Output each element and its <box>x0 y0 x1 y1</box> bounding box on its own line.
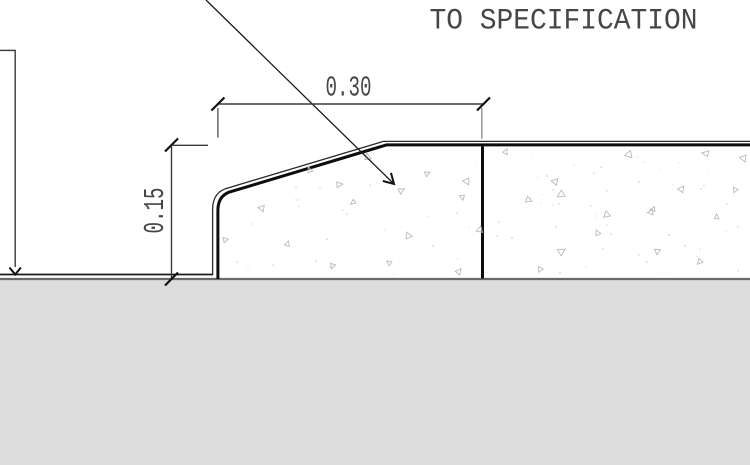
svg-text:TO SPECIFICATION: TO SPECIFICATION <box>430 5 698 39</box>
svg-text:0.30: 0.30 <box>326 72 372 105</box>
svg-text:0.15: 0.15 <box>139 188 172 234</box>
